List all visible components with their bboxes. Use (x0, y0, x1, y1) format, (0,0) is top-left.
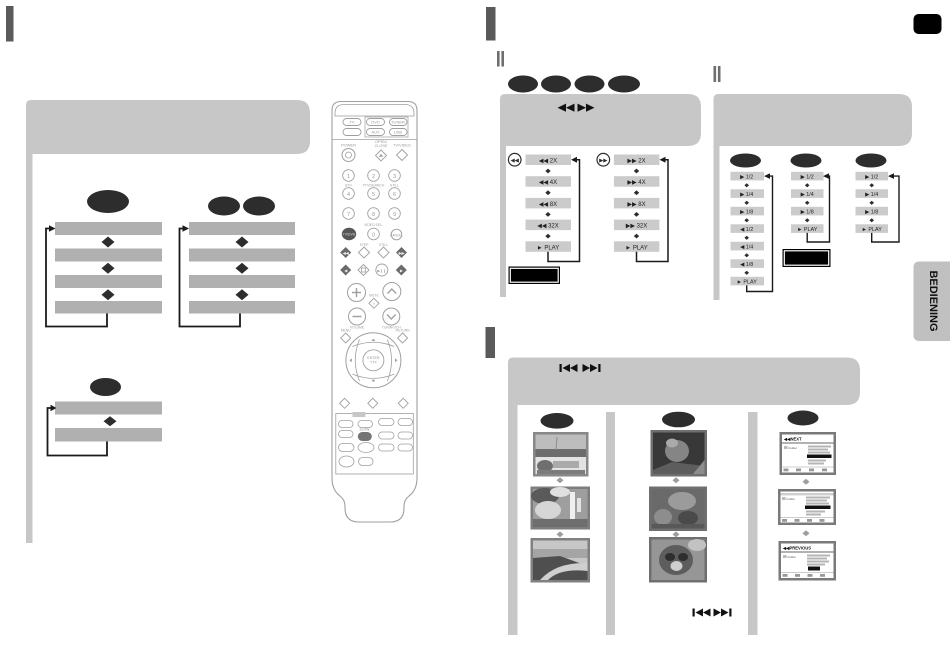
svg-text:► PLAY: ► PLAY (797, 227, 818, 233)
svg-text:▶▶ 4X: ▶▶ 4X (627, 180, 645, 186)
svg-text:CLOSE: CLOSE (375, 144, 388, 148)
svg-text:SLOW: SLOW (360, 428, 371, 432)
svg-text:◀◀ 4X: ◀◀ 4X (539, 180, 557, 186)
svg-text:◀◀PREVIOUS: ◀◀PREVIOUS (782, 546, 811, 551)
svg-text:RETURN: RETURN (396, 329, 411, 333)
svg-text:3: 3 (393, 174, 396, 180)
svg-text:▶▶ 8X: ▶▶ 8X (627, 202, 645, 208)
svg-text:◀◀NEXT: ◀◀NEXT (783, 437, 802, 442)
svg-text:Folder: Folder (787, 497, 796, 501)
svg-text:TV: TV (349, 120, 354, 125)
svg-text:STEP: STEP (360, 243, 370, 247)
svg-text:▶ 1/2: ▶ 1/2 (865, 175, 878, 181)
svg-text:TTX: TTX (370, 361, 377, 365)
svg-text:4: 4 (347, 192, 350, 198)
svg-text:POWER: POWER (341, 143, 356, 148)
svg-text:USB: USB (394, 130, 403, 135)
svg-text:9: 9 (393, 212, 396, 218)
svg-text:▶ 1/8: ▶ 1/8 (801, 210, 814, 216)
svg-text:◀◀: ◀◀ (510, 158, 519, 164)
svg-text:▶❙❙: ▶❙❙ (377, 268, 386, 273)
svg-text:▶ 1/8: ▶ 1/8 (865, 210, 878, 216)
svg-text:▶▶ 32X: ▶▶ 32X (626, 224, 648, 230)
svg-text:8: 8 (372, 212, 375, 218)
svg-text:PTV/SEARCH: PTV/SEARCH (363, 184, 385, 188)
svg-text:CANCEL: CANCEL (390, 233, 403, 237)
svg-text:◀◀ 8X: ◀◀ 8X (539, 202, 557, 208)
svg-text:AUX: AUX (371, 130, 380, 135)
svg-text:◀ 1/2: ◀ 1/2 (740, 227, 753, 233)
svg-text:► PLAY: ► PLAY (537, 245, 560, 251)
svg-text:◀ 1/4: ◀ 1/4 (740, 245, 753, 251)
svg-text:0: 0 (372, 233, 375, 239)
svg-text:▶ 1/2: ▶ 1/2 (740, 175, 753, 181)
svg-text:► PLAY: ► PLAY (737, 280, 758, 286)
svg-text:▶ 1/4: ▶ 1/4 (801, 192, 814, 198)
svg-text:TV/DVD: TV/DVD (343, 233, 356, 237)
svg-text:TV/VIDEO: TV/VIDEO (393, 144, 411, 148)
svg-text:6: 6 (393, 192, 396, 198)
svg-text:Folder: Folder (788, 555, 797, 559)
svg-text:TUNER: TUNER (391, 120, 405, 125)
svg-text:▶▶ 2X: ▶▶ 2X (627, 159, 645, 165)
svg-text:7: 7 (347, 212, 350, 218)
svg-text:STILL: STILL (379, 243, 388, 247)
svg-text:▶ 1/4: ▶ 1/4 (865, 192, 878, 198)
svg-text:▶ 1/8: ▶ 1/8 (740, 210, 753, 216)
svg-text:◀◀ 2X: ◀◀ 2X (539, 159, 557, 165)
svg-text:◀ 1/8: ◀ 1/8 (740, 262, 753, 268)
svg-text:5: 5 (372, 192, 375, 198)
svg-text:1: 1 (347, 174, 350, 180)
svg-text:2: 2 (372, 174, 375, 180)
svg-text:BEDIENING: BEDIENING (927, 270, 939, 331)
svg-text:DVD: DVD (371, 120, 380, 125)
svg-text:STILL: STILL (390, 184, 399, 188)
svg-text:BTV: BTV (345, 184, 352, 188)
svg-text:▶ 1/2: ▶ 1/2 (801, 175, 814, 181)
svg-text:ENTER: ENTER (367, 356, 380, 360)
svg-text:MENU: MENU (341, 329, 352, 333)
svg-text:◀◀ 32X: ◀◀ 32X (537, 224, 559, 230)
svg-text:▶▶: ▶▶ (599, 158, 608, 164)
svg-text:Folder: Folder (789, 446, 798, 450)
svg-text:MUTE: MUTE (369, 294, 379, 298)
svg-text:► PLAY: ► PLAY (625, 245, 648, 251)
svg-text:▶ 1/4: ▶ 1/4 (740, 192, 753, 198)
svg-text:×: × (373, 302, 375, 306)
svg-text:► PLAY: ► PLAY (862, 227, 883, 233)
svg-text:VIDEO SEL.: VIDEO SEL. (364, 223, 383, 227)
svg-text:VOLUME: VOLUME (350, 326, 365, 330)
